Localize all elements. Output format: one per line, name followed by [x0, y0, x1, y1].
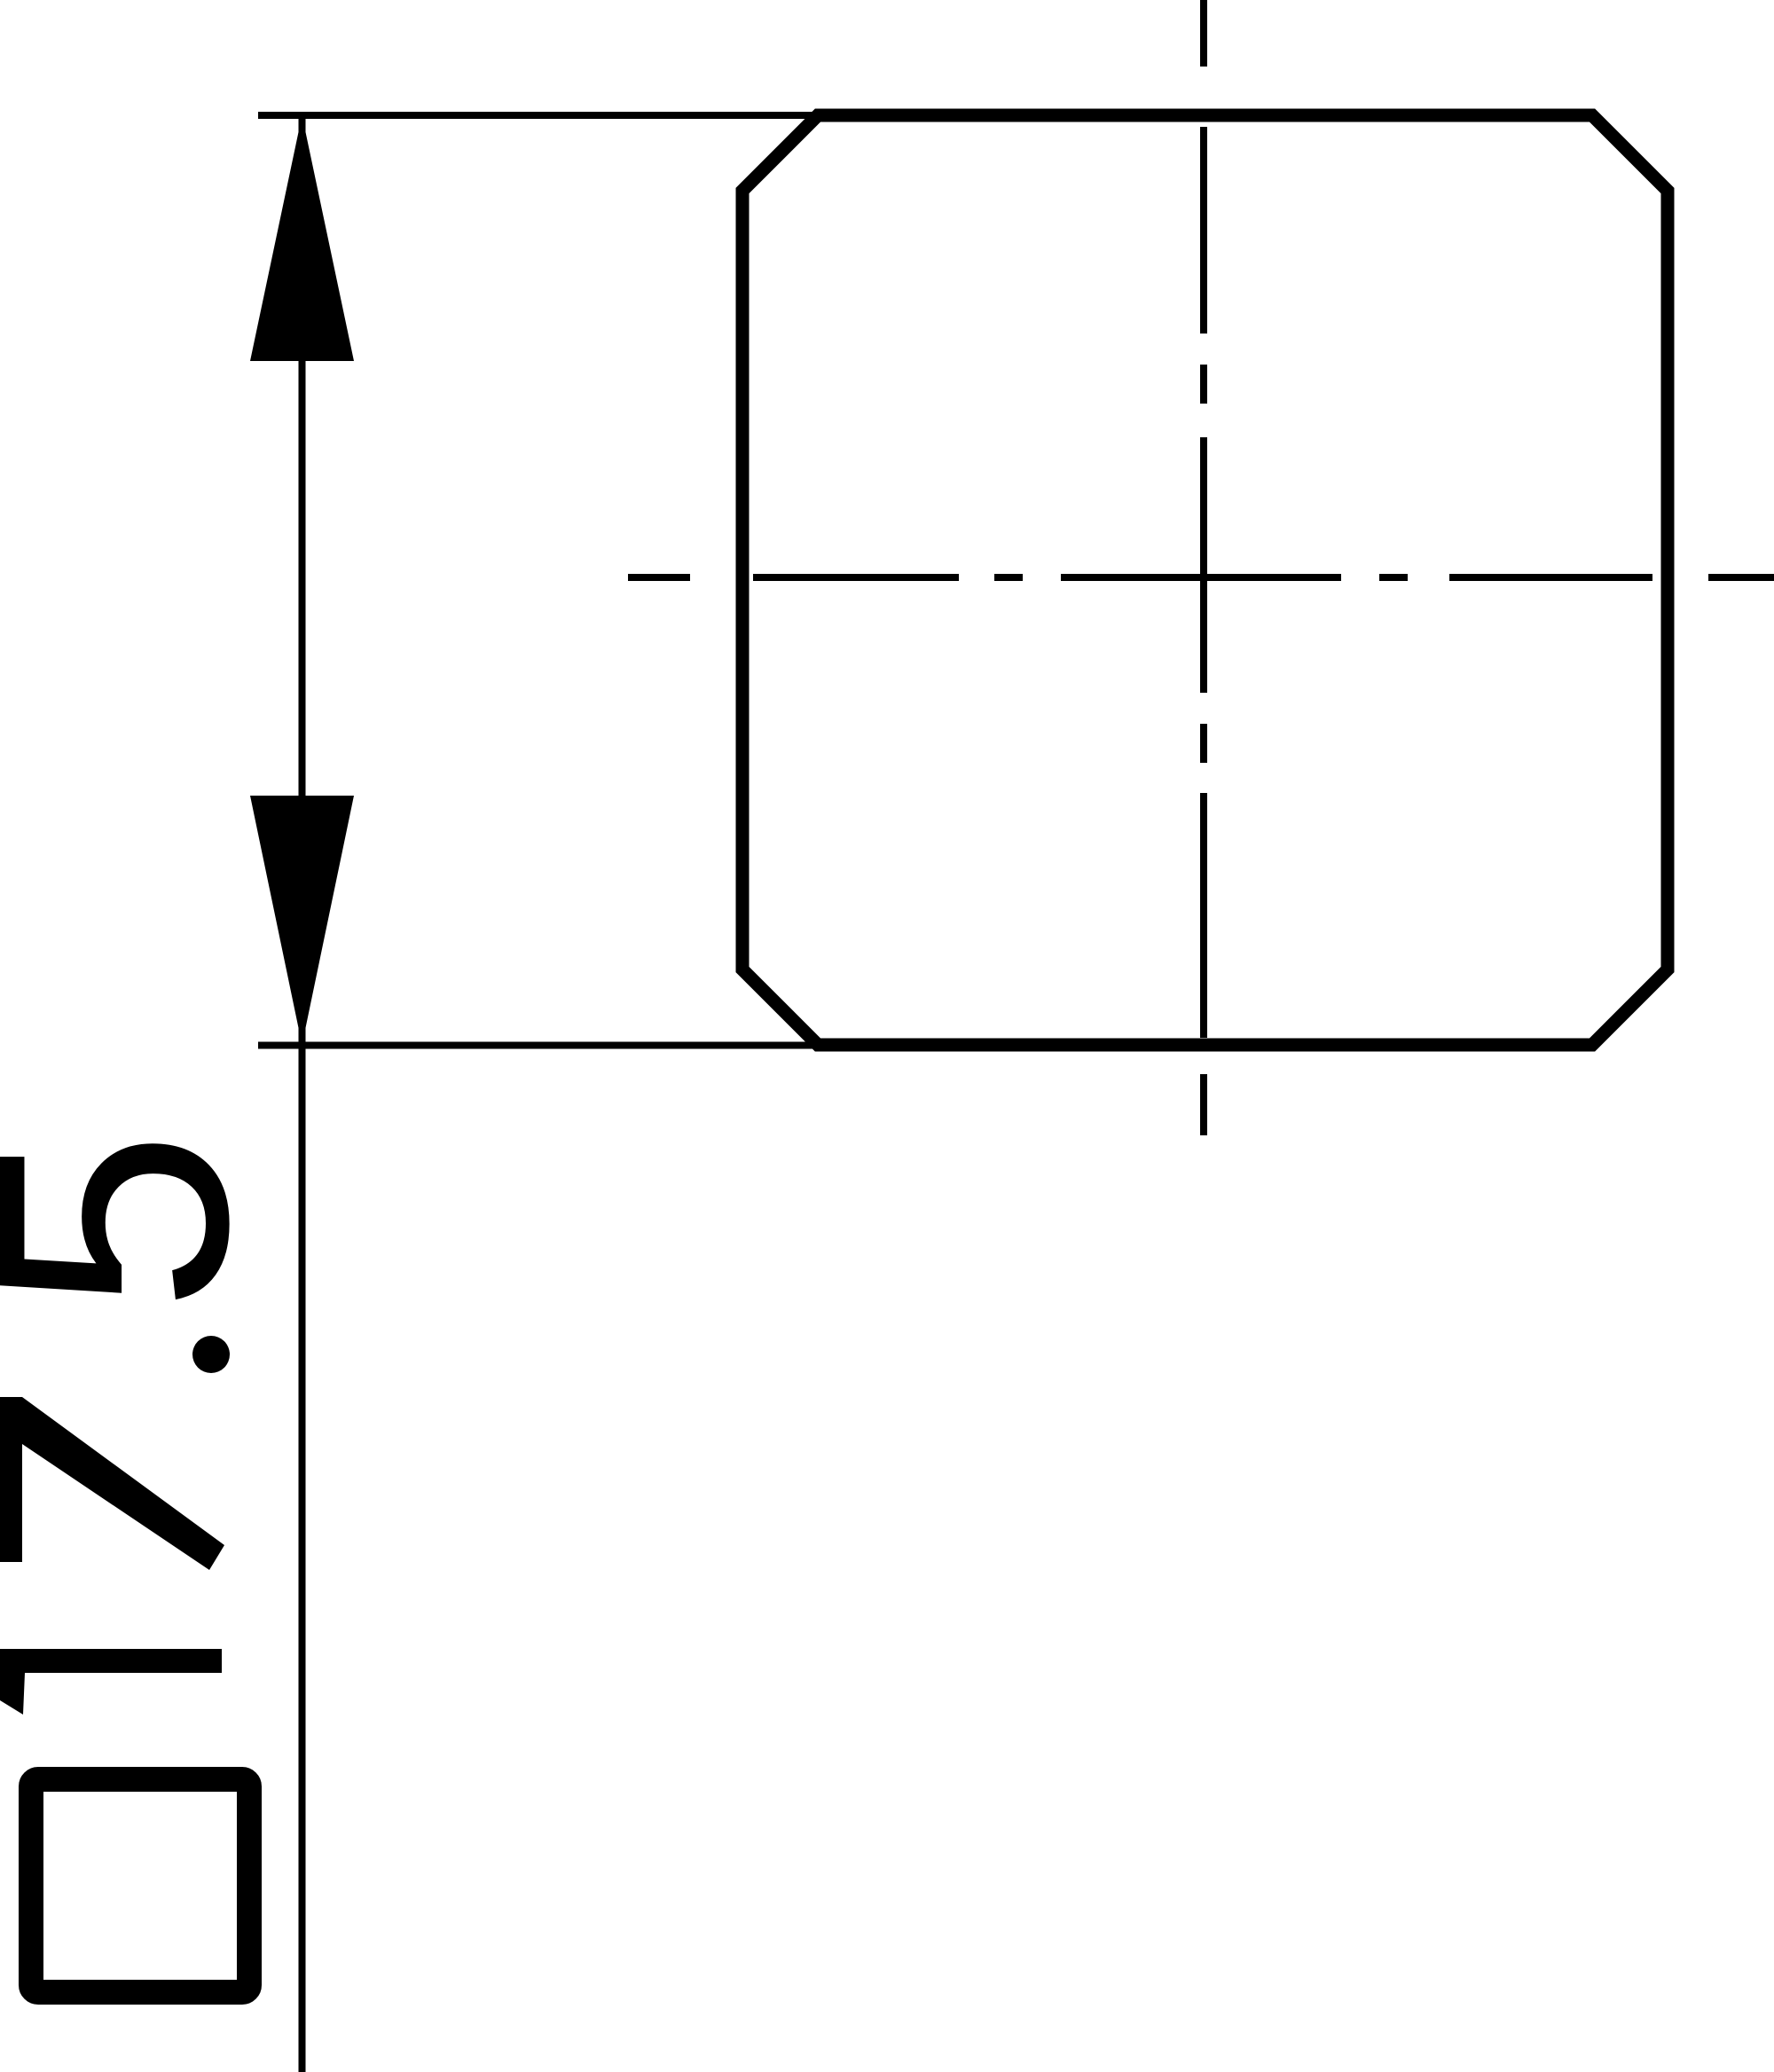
svg-text:5: 5 [0, 1130, 296, 1313]
